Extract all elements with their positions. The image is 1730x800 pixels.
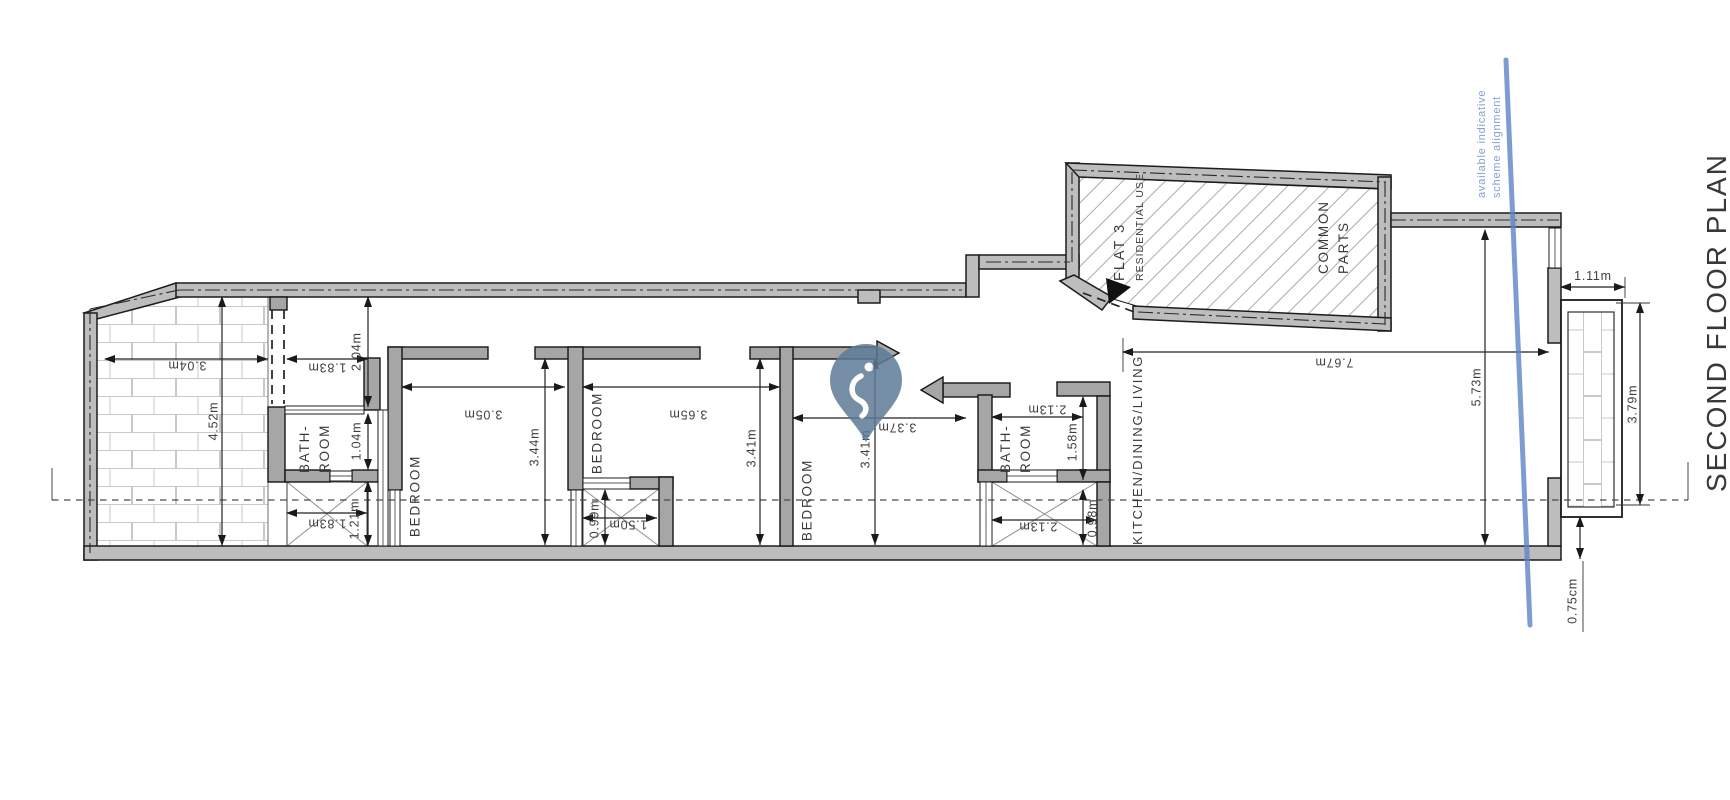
room-label-kitchen: KITCHEN/DINING/LIVING — [1130, 355, 1145, 545]
dim-bed1-width: 3.05m — [464, 408, 503, 422]
dim-bay2-depth: 0.99m — [587, 500, 601, 539]
scheme-alignment-line — [1506, 60, 1530, 625]
room-label-bedroom3: BEDROOM — [800, 459, 815, 541]
terrace-tiled-area — [97, 297, 268, 546]
alignment-note-line1: available indicative — [1476, 90, 1488, 198]
dim-bay1-width: 1.83m — [308, 517, 347, 531]
plan-title: SECOND FLOOR PLAN — [1701, 153, 1730, 492]
floor-plan-page: 3.04m 4.52m 1.83m 2.04m 1.04m 1.83m 1.21… — [0, 0, 1730, 800]
room-label-bedroom2: BEDROOM — [590, 392, 605, 474]
room-label-bathroom1-line2: ROOM — [317, 424, 332, 473]
balcony — [1561, 300, 1622, 517]
dim-terrace-depth: 4.52m — [206, 402, 220, 441]
dim-bed2-width: 3.65m — [669, 408, 708, 422]
dim-hall-width: 1.83m — [308, 361, 347, 375]
dim-bay3-depth: 0.98m — [1085, 499, 1099, 538]
dim-bath2-width: 2.13m — [1028, 403, 1067, 417]
dim-balcony-depth: 3.79m — [1625, 385, 1639, 424]
room-label-bathroom2-line1: BATH- — [998, 425, 1013, 474]
dim-bay3-width: 2.13m — [1019, 520, 1058, 534]
room-label-bathroom2-line2: ROOM — [1018, 424, 1033, 473]
dim-living-depth: 5.73m — [1469, 368, 1483, 407]
room-label-flat3-use: RESIDENTIAL USE — [1134, 173, 1146, 281]
dim-bay1-depth: 1.21m — [347, 501, 361, 540]
dim-terrace-width: 3.04m — [168, 359, 207, 373]
room-label-common-line1: COMMON — [1316, 200, 1331, 274]
room-label-bathroom1-line1: BATH- — [297, 425, 312, 474]
dim-balcony-width: 1.11m — [1574, 269, 1612, 283]
alignment-note-line2: scheme alignment — [1491, 96, 1503, 198]
dim-balcony-offset: 0.75cm — [1565, 578, 1579, 624]
dim-bay2-width: 1.50m — [609, 518, 648, 532]
scheme-alignment: available indicative scheme alignment — [1476, 60, 1530, 625]
dim-bed1-depth: 3.44m — [527, 428, 541, 467]
room-label-common-line2: PARTS — [1336, 221, 1351, 274]
dim-bed3-width: 3.37m — [878, 421, 917, 435]
door-direction-arrow-left — [921, 377, 943, 403]
room-label-flat3: FLAT 3 — [1112, 223, 1128, 281]
room-label-bedroom1: BEDROOM — [408, 455, 423, 537]
dim-bath1-depth: 1.04m — [349, 422, 363, 461]
dim-bath2-depth: 1.58m — [1065, 423, 1079, 462]
floor-plan-canvas: 3.04m 4.52m 1.83m 2.04m 1.04m 1.83m 1.21… — [0, 0, 1730, 800]
dim-living-width: 7.67m — [1315, 356, 1354, 370]
dim-bed2-depth: 3.41m — [744, 429, 758, 468]
dim-hall-depth: 2.04m — [349, 332, 363, 371]
